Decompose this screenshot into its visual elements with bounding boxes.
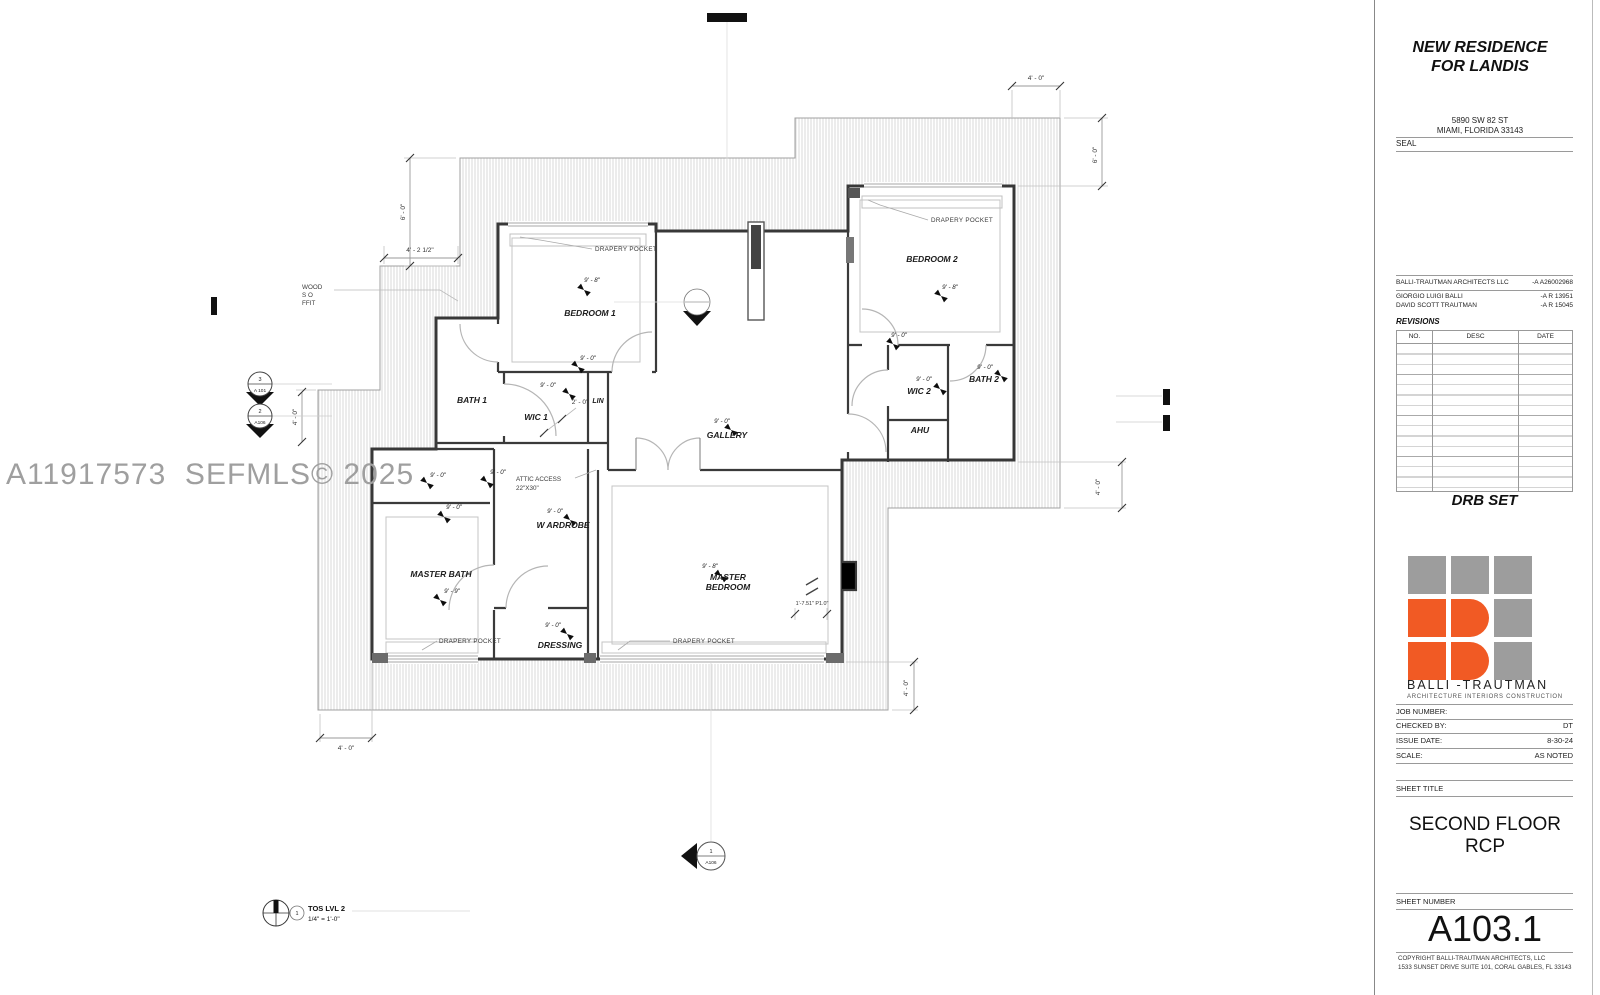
height-label: 9' - 0"	[540, 382, 557, 389]
height-label: 9' - 9"	[444, 588, 461, 595]
issue-date-value: 8-30-24	[1547, 734, 1573, 747]
height-label: 9' - 0"	[490, 469, 507, 476]
attic-access-note: ATTIC ACCESS	[516, 476, 561, 483]
height-label: 9' - 0"	[916, 376, 933, 383]
room-label-bath2: BATH 2	[969, 374, 999, 384]
room-label-master-bath: MASTER BATH	[410, 569, 472, 579]
divider	[1396, 796, 1573, 797]
room-label-dressing: DRESSING	[538, 640, 583, 650]
copyright: COPYRIGHT BALLI-TRAUTMAN ARCHITECTS, LLC…	[1398, 955, 1571, 972]
architect-row: DAVID SCOTT TRAUTMAN -A R 15045	[1396, 302, 1573, 309]
marker-number: 3	[258, 377, 261, 383]
dim-label: 2' - 0"	[572, 399, 589, 406]
revisions-col-desc: DESC	[1433, 331, 1519, 343]
drapery-pocket-label: DRAPERY POCKET	[439, 638, 501, 645]
dim-label: 4' - 0"	[1095, 478, 1102, 495]
checked-by-label: CHECKED BY:	[1396, 721, 1446, 730]
firm-name: BALLI-TRAUTMAN ARCHITECTS LLC	[1396, 279, 1509, 286]
sheet-title: SECOND FLOOR RCP	[1390, 814, 1580, 858]
set-label: DRB SET	[1396, 492, 1573, 509]
revisions-header: NO. DESC DATE	[1397, 331, 1572, 344]
sheet-title-label: SHEET TITLE	[1396, 784, 1443, 793]
checked-by-value: DT	[1563, 719, 1573, 732]
project-title-line1: NEW RESIDENCE	[1382, 38, 1578, 57]
drawing-sheet: 9' - 8" 9' - 0" 9' - 0" 9' - 8" 9' - 0" …	[0, 0, 1600, 995]
architect2-license: -A R 15045	[1540, 302, 1573, 309]
divider	[1396, 893, 1573, 894]
project-title-line2: FOR LANDIS	[1382, 57, 1578, 76]
marker-number: 1	[709, 849, 712, 855]
job-number-row: JOB NUMBER:	[1396, 704, 1573, 720]
project-address: 5890 SW 82 ST MIAMI, FLORIDA 33143	[1382, 116, 1578, 136]
height-label: 9' - 0"	[891, 332, 908, 339]
fan-icon	[933, 383, 947, 396]
sheet-number-label: SHEET NUMBER	[1396, 897, 1455, 906]
dim-label: 6' - 0"	[1092, 146, 1099, 163]
section-cut-mark	[211, 297, 217, 315]
logo-tagline: ARCHITECTURE INTERIORS CONSTRUCTION	[1407, 694, 1563, 700]
wood-soffit-note3: FFIT	[302, 300, 315, 307]
marker-number: 2	[258, 409, 261, 415]
room-label-lin: LIN	[592, 398, 604, 405]
room-label-bedroom1: BEDROOM 1	[564, 308, 616, 318]
architect1-name: GIORGIO LUIGI BALLI	[1396, 293, 1463, 300]
fan-icon	[577, 284, 591, 297]
dim-label: 4' - 0"	[338, 745, 355, 752]
firm-license: -A A26002968	[1532, 279, 1573, 286]
room-label-master-bedroom2: BEDROOM	[706, 582, 751, 592]
drapery-pocket-label: DRAPERY POCKET	[673, 638, 735, 645]
wood-soffit-note2: S O	[302, 292, 313, 299]
address-line1: 5890 SW 82 ST	[1382, 116, 1578, 126]
checked-by-row: CHECKED BY: DT	[1396, 719, 1573, 734]
section-cut-mark	[1163, 415, 1170, 431]
drapery-pocket-label: DRAPERY POCKET	[931, 217, 993, 224]
copyright-line1: COPYRIGHT BALLI-TRAUTMAN ARCHITECTS, LLC	[1398, 955, 1571, 964]
logo-cell	[1408, 556, 1446, 594]
room-label-bath1: BATH 1	[457, 395, 487, 405]
logo-cell	[1494, 642, 1532, 680]
project-title: NEW RESIDENCE FOR LANDIS	[1382, 38, 1578, 76]
divider	[1396, 290, 1573, 291]
fan-icon	[560, 628, 574, 641]
logo-cell	[1451, 642, 1489, 680]
architect-row: GIORGIO LUIGI BALLI -A R 13951	[1396, 293, 1573, 300]
logo-cell	[1408, 599, 1446, 637]
room-label-wardrobe: W ARDROBE	[536, 520, 589, 530]
room-label-master-bedroom: MASTER	[710, 572, 747, 582]
section-marker-gallery	[614, 289, 711, 326]
height-label: 9' - 0"	[430, 472, 447, 479]
divider	[1396, 137, 1573, 138]
firm-logo	[1408, 556, 1532, 680]
height-label: 9' - 8"	[584, 277, 601, 284]
dim-label: 6' - 0"	[400, 203, 407, 220]
revisions-col-date: DATE	[1519, 331, 1572, 343]
sheet-title-line1: SECOND FLOOR	[1390, 814, 1580, 836]
fan-icon	[480, 476, 494, 489]
fan-icon	[934, 290, 948, 303]
floor-plan-svg: 9' - 8" 9' - 0" 9' - 0" 9' - 8" 9' - 0" …	[0, 0, 1378, 995]
height-label: 9' - 0"	[714, 418, 731, 425]
issue-date-label: ISSUE DATE:	[1396, 736, 1442, 745]
revisions-title: REVISIONS	[1396, 317, 1440, 326]
sheet-right-border	[1592, 0, 1593, 995]
scale-value: AS NOTED	[1535, 749, 1573, 762]
seal-label: SEAL	[1396, 139, 1416, 148]
room-label-bedroom2: BEDROOM 2	[906, 254, 958, 264]
address-line2: MIAMI, FLORIDA 33143	[1382, 126, 1578, 136]
attic-access-note2: 22"X30"	[516, 485, 539, 492]
mls-watermark: A11917573 SEFMLS© 2025	[6, 458, 414, 492]
section-marker-3-A101: 3 A 101	[246, 372, 274, 406]
logo-cell	[1451, 556, 1489, 594]
height-label: 9' - 0"	[547, 508, 564, 515]
room-label-wic1: WIC 1	[524, 412, 548, 422]
revisions-col-no: NO.	[1397, 331, 1433, 343]
legend-scale: 1/4" = 1'-0"	[308, 916, 340, 923]
logo-cell	[1494, 556, 1532, 594]
marker-sheet: A106	[705, 860, 717, 866]
marker-sheet: A 101	[254, 388, 267, 394]
scale-label: SCALE:	[1396, 751, 1423, 760]
logo-cell	[1494, 599, 1532, 637]
firm-row: BALLI-TRAUTMAN ARCHITECTS LLC -A A260029…	[1396, 279, 1573, 286]
scale-row: SCALE: AS NOTED	[1396, 749, 1573, 764]
issue-date-row: ISSUE DATE: 8-30-24	[1396, 734, 1573, 749]
section-marker-2-A106: 2 A106	[246, 404, 274, 438]
logo-name: BALLI -TRAUTMAN	[1407, 678, 1548, 692]
section-cut-mark	[1163, 389, 1170, 405]
divider	[1396, 151, 1573, 152]
divider	[1396, 275, 1573, 276]
sheet-title-line2: RCP	[1390, 836, 1580, 858]
revisions-table: NO. DESC DATE	[1396, 330, 1573, 492]
section-cut-mark	[707, 13, 747, 22]
dim-label: 4' - 0"	[292, 408, 299, 425]
room-label-ahu: AHU	[910, 425, 930, 435]
divider	[1396, 952, 1573, 953]
divider	[1396, 780, 1573, 781]
height-label: 9' - 0"	[545, 622, 562, 629]
titleblock-left-border	[1374, 0, 1375, 995]
marker-sheet: A106	[254, 420, 266, 426]
height-label: 9' - 0"	[977, 364, 994, 371]
copyright-line2: 1533 SUNSET DRIVE SUITE 101, CORAL GABLE…	[1398, 964, 1571, 973]
wood-soffit-note: WOOD	[302, 284, 323, 291]
logo-cell	[1451, 599, 1489, 637]
height-label: 9' - 0"	[446, 504, 463, 511]
dim-label: 4' - 0"	[1028, 75, 1045, 82]
logo-cell	[1408, 642, 1446, 680]
dim-label: 1'-7.51" P1.0"	[796, 601, 829, 607]
revisions-empty-rows	[1397, 344, 1572, 492]
height-label: 9' - 8"	[702, 563, 719, 570]
shaft	[748, 222, 764, 320]
revisions-col-divider	[1432, 344, 1433, 492]
level-legend: 1 TOS LVL 2 1/4" = 1'-0"	[263, 900, 470, 926]
drapery-pocket-label: DRAPERY POCKET	[595, 246, 657, 253]
dim-label: 4' - 0"	[903, 679, 910, 696]
dim-label: 4' - 2 1/2"	[406, 247, 434, 254]
legend-ref-number: 1	[295, 911, 298, 917]
architect1-license: -A R 13951	[1540, 293, 1573, 300]
room-label-gallery: GALLERY	[707, 430, 749, 440]
legend-level-name: TOS LVL 2	[308, 904, 345, 913]
height-label: 9' - 8"	[942, 284, 959, 291]
job-number-label: JOB NUMBER:	[1396, 707, 1447, 716]
fan-icon	[433, 594, 447, 607]
room-label-wic2: WIC 2	[907, 386, 931, 396]
sheet-number: A103.1	[1390, 908, 1580, 950]
height-label: 9' - 0"	[580, 355, 597, 362]
revisions-col-divider	[1518, 344, 1519, 492]
architect2-name: DAVID SCOTT TRAUTMAN	[1396, 302, 1477, 309]
